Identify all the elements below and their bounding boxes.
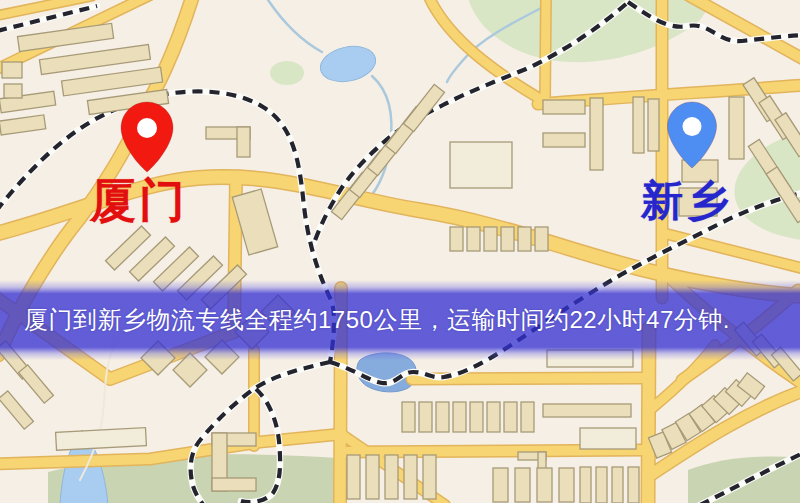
route-info-banner: 厦门到新乡物流专线全程约1750公里，运输时间约22小时47分钟. [0, 280, 800, 360]
route-info-text: 厦门到新乡物流专线全程约1750公里，运输时间约22小时47分钟. [0, 304, 730, 336]
city-label-destination: 新乡 [641, 180, 733, 222]
origin-pin-icon [121, 102, 173, 172]
destination-pin-icon [668, 102, 717, 168]
map-canvas [0, 0, 800, 503]
route-map-image: 厦门 新乡 厦门到新乡物流专线全程约1750公里，运输时间约22小时47分钟. [0, 0, 800, 503]
city-label-origin: 厦门 [90, 177, 188, 223]
